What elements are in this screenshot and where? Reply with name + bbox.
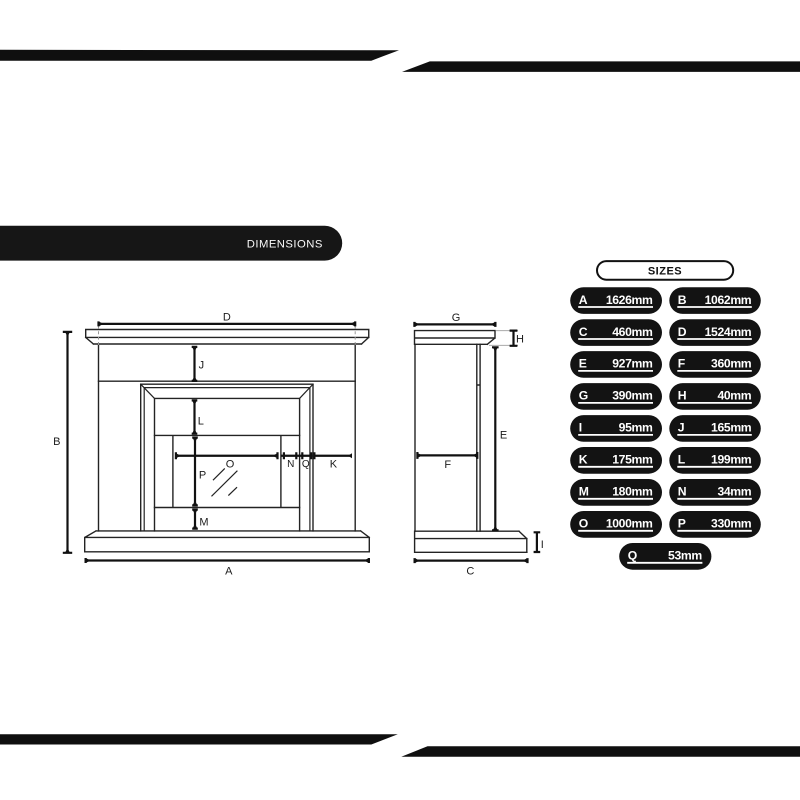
svg-text:L: L [198, 416, 204, 428]
svg-text:199mm: 199mm [711, 453, 752, 467]
svg-text:J: J [678, 421, 685, 435]
svg-text:H: H [516, 333, 524, 345]
svg-text:G: G [579, 389, 588, 403]
svg-text:L: L [678, 453, 686, 467]
svg-text:G: G [452, 312, 461, 324]
svg-text:N: N [287, 459, 294, 470]
svg-text:175mm: 175mm [612, 453, 653, 467]
svg-text:D: D [223, 311, 231, 323]
svg-text:460mm: 460mm [612, 325, 653, 339]
svg-text:O: O [579, 517, 588, 531]
svg-text:1524mm: 1524mm [705, 325, 752, 339]
svg-text:O: O [226, 458, 235, 470]
svg-text:180mm: 180mm [612, 485, 653, 499]
svg-text:C: C [579, 325, 588, 339]
svg-text:H: H [678, 389, 687, 403]
svg-text:Q: Q [302, 459, 310, 470]
svg-text:P: P [199, 470, 206, 482]
svg-text:J: J [199, 359, 205, 371]
svg-text:M: M [199, 516, 208, 528]
svg-text:E: E [579, 357, 587, 371]
svg-text:C: C [466, 565, 474, 577]
svg-text:53mm: 53mm [668, 549, 702, 563]
svg-text:F: F [444, 459, 451, 471]
svg-text:927mm: 927mm [612, 357, 653, 371]
svg-text:40mm: 40mm [717, 389, 751, 403]
svg-text:A: A [225, 565, 233, 577]
svg-text:B: B [53, 436, 60, 448]
svg-text:I: I [541, 539, 544, 551]
svg-text:330mm: 330mm [711, 517, 752, 531]
svg-text:F: F [678, 357, 685, 371]
svg-text:P: P [678, 517, 686, 531]
svg-text:K: K [579, 453, 588, 467]
svg-text:I: I [579, 421, 582, 435]
svg-text:Q: Q [628, 549, 637, 563]
svg-text:SIZES: SIZES [648, 266, 682, 278]
svg-text:K: K [330, 458, 338, 470]
svg-text:DIMENSIONS: DIMENSIONS [247, 239, 323, 251]
svg-text:165mm: 165mm [711, 421, 752, 435]
svg-text:360mm: 360mm [711, 357, 752, 371]
svg-text:1000mm: 1000mm [606, 517, 653, 531]
svg-text:M: M [579, 485, 589, 499]
svg-text:390mm: 390mm [612, 389, 653, 403]
svg-text:E: E [500, 430, 507, 442]
svg-text:95mm: 95mm [619, 421, 653, 435]
svg-text:B: B [678, 293, 687, 307]
svg-text:D: D [678, 325, 687, 339]
svg-text:1062mm: 1062mm [705, 293, 752, 307]
svg-text:N: N [678, 485, 687, 499]
svg-text:A: A [579, 293, 588, 307]
svg-text:34mm: 34mm [717, 485, 751, 499]
svg-text:1626mm: 1626mm [606, 293, 653, 307]
